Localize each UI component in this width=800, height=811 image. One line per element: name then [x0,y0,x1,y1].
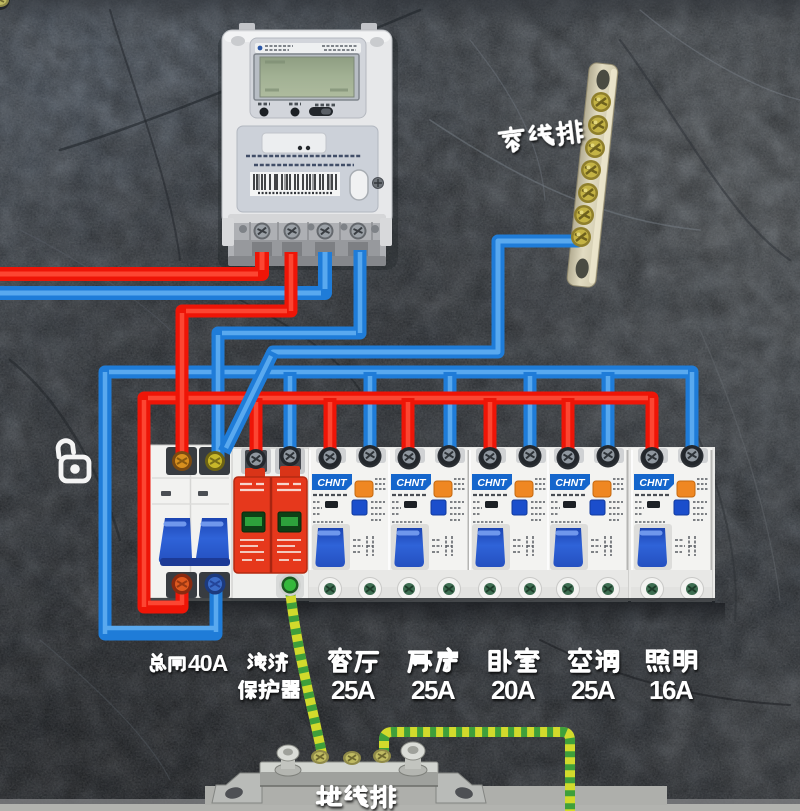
svg-text:40A: 40A [188,650,228,676]
svg-text:25A: 25A [571,675,616,705]
svg-text:25A: 25A [331,675,376,705]
svg-text:16A: 16A [649,675,694,705]
svg-text:25A: 25A [411,675,456,705]
svg-text:20A: 20A [491,675,536,705]
